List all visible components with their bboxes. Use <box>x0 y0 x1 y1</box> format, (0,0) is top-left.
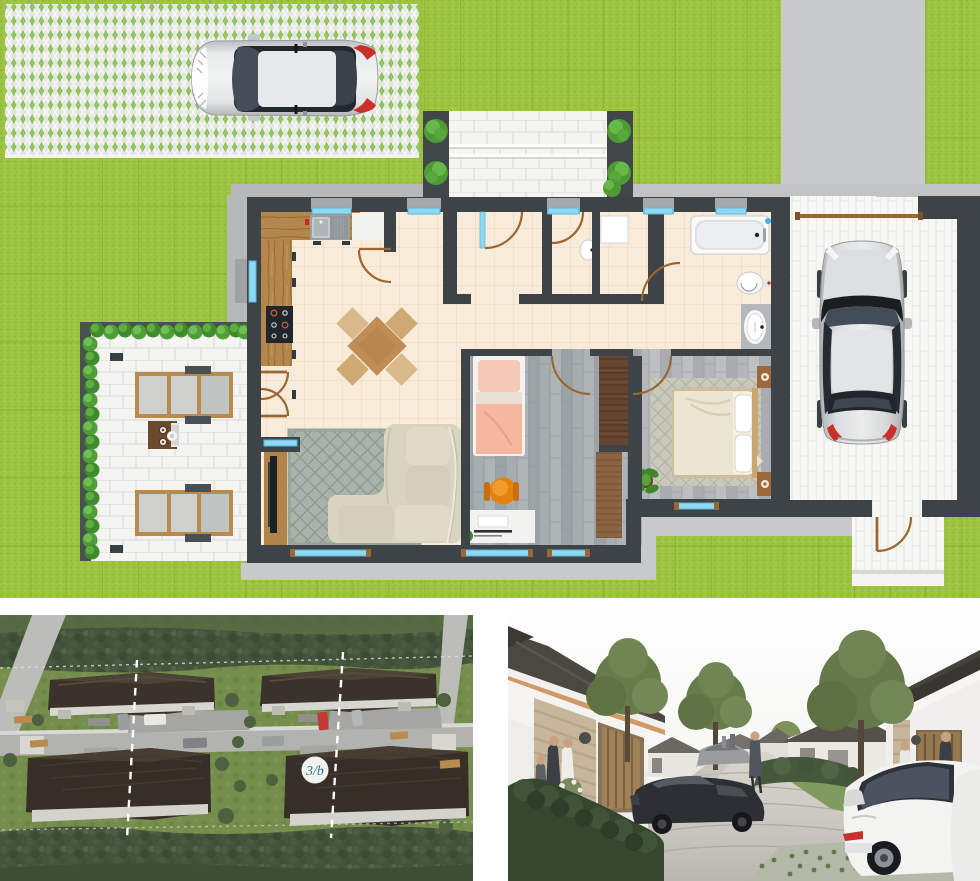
svg-text:3/b: 3/b <box>305 764 324 779</box>
